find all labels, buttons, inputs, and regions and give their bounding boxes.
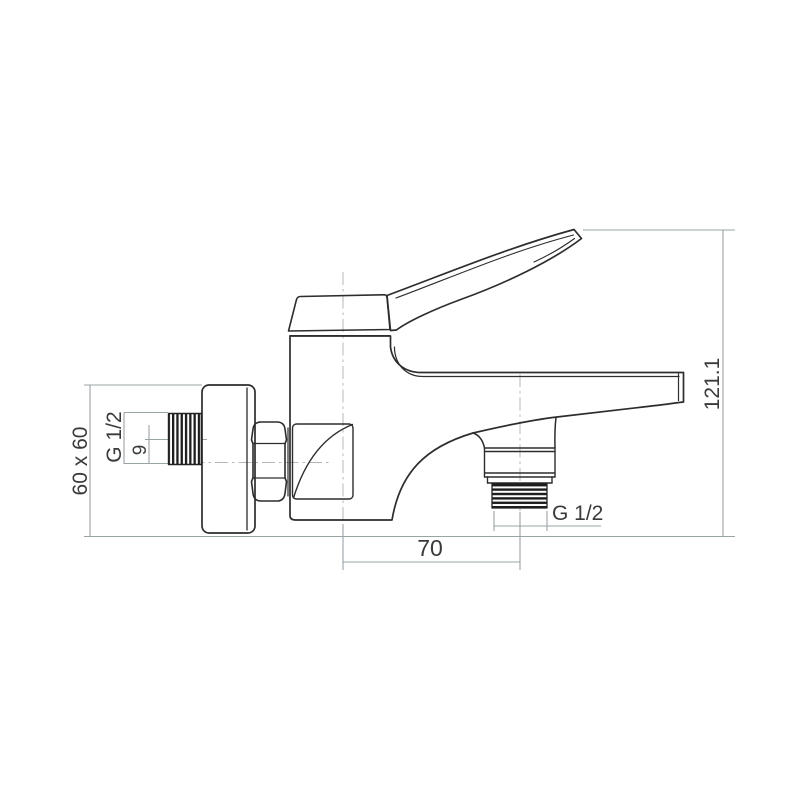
body-inner-housing xyxy=(293,424,354,499)
dimension-lines xyxy=(84,230,735,570)
drawing-canvas: 60 x 60 G 1/2 9 121.1 70 G 1/2 xyxy=(0,0,800,800)
body-and-spout xyxy=(290,336,684,520)
faucet-outline xyxy=(169,230,684,534)
label-inlet-offset: 9 xyxy=(130,445,151,456)
lever-handle xyxy=(387,230,582,331)
outlet-thread xyxy=(492,484,547,509)
label-flange-size: 60 x 60 xyxy=(69,427,92,496)
label-total-height: 121.1 xyxy=(701,358,724,411)
outlet-right-transition xyxy=(555,418,556,449)
lever-underside-sliver xyxy=(534,239,575,263)
hex-nut xyxy=(252,422,287,501)
outlet-left-transition xyxy=(473,433,485,448)
label-outlet-thread: G 1/2 xyxy=(552,502,603,525)
handle-base-cap xyxy=(289,295,391,331)
centerlines xyxy=(168,272,520,524)
inlet-thread-nipple xyxy=(169,414,202,465)
label-outlet-distance: 70 xyxy=(417,535,443,561)
dimension-labels: 60 x 60 G 1/2 9 121.1 70 G 1/2 xyxy=(69,358,724,561)
body-inner-sweep-curve xyxy=(294,425,353,499)
label-inlet-thread: G 1/2 xyxy=(103,411,126,462)
faucet-technical-drawing: 60 x 60 G 1/2 9 121.1 70 G 1/2 xyxy=(0,0,800,800)
lever-top-inner-edge xyxy=(396,235,574,298)
